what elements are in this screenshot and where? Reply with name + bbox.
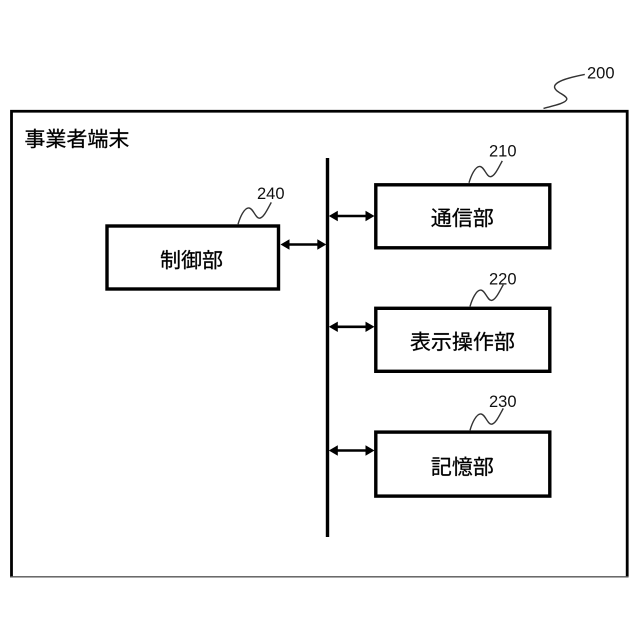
- svg-text:240: 240: [257, 185, 285, 203]
- svg-text:210: 210: [489, 142, 517, 160]
- svg-text:200: 200: [587, 65, 615, 83]
